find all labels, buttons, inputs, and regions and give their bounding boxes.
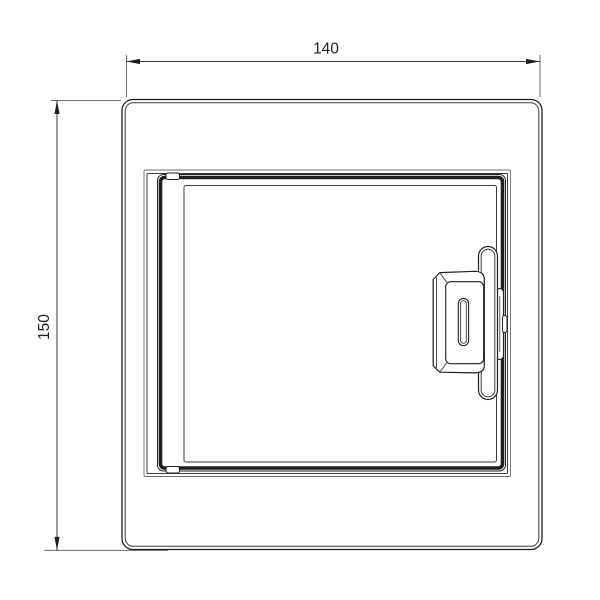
width-dimension: 140 [127, 41, 541, 98]
arrowhead-right [526, 59, 540, 64]
technical-drawing-canvas: 140 150 [0, 0, 600, 600]
height-dimension-label: 150 [36, 314, 53, 340]
arrowhead-top [54, 101, 59, 115]
latch-catch-tab [503, 316, 508, 333]
handle-grip-slot-outer [458, 298, 468, 345]
arrowhead-bottom [54, 537, 59, 551]
arrowhead-left [127, 59, 141, 64]
hinge-pin-bottom [166, 467, 180, 474]
technical-drawing-page: 140 150 [0, 0, 600, 600]
width-dimension-label: 140 [313, 41, 339, 58]
hinge-pin-top [166, 173, 180, 180]
latch-handle [433, 271, 484, 373]
